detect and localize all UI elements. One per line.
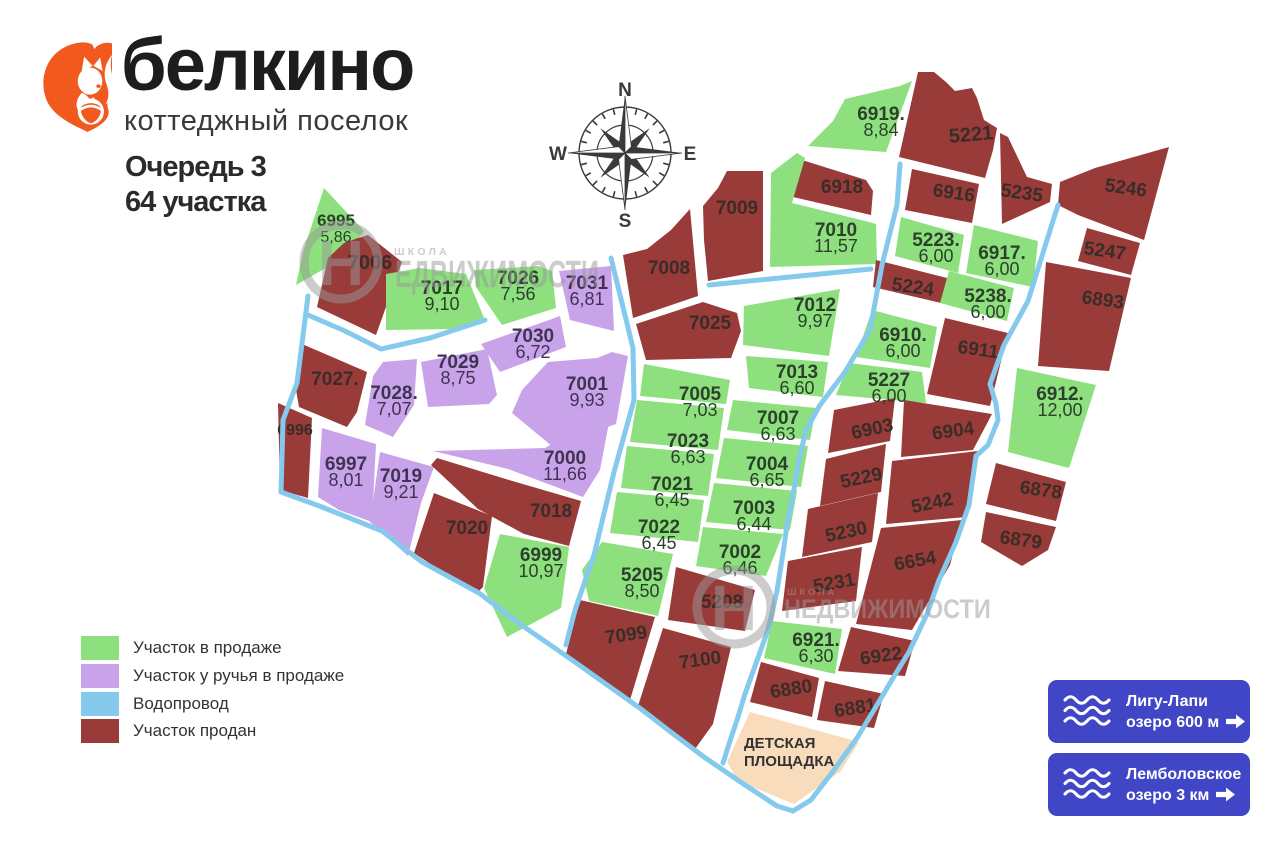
- svg-text:7018: 7018: [530, 501, 572, 522]
- svg-text:11,57: 11,57: [814, 236, 858, 256]
- svg-text:10,97: 10,97: [518, 561, 563, 581]
- svg-text:6,44: 6,44: [736, 514, 771, 534]
- svg-text:7009: 7009: [716, 198, 758, 219]
- svg-text:7,03: 7,03: [682, 400, 717, 420]
- svg-text:ЕДВИЖИМОСТИ: ЕДВИЖИМОСТИ: [395, 253, 599, 295]
- svg-text:6,65: 6,65: [749, 470, 784, 490]
- svg-text:9,97: 9,97: [797, 311, 832, 331]
- svg-text:S: S: [619, 211, 632, 232]
- svg-text:Н: Н: [318, 227, 364, 299]
- svg-text:7008: 7008: [648, 258, 690, 279]
- svg-text:6,45: 6,45: [641, 533, 676, 553]
- svg-text:6,45: 6,45: [654, 490, 689, 510]
- svg-text:8,01: 8,01: [328, 470, 363, 490]
- svg-text:6,63: 6,63: [760, 424, 795, 444]
- svg-text:11,66: 11,66: [543, 464, 587, 484]
- svg-text:5221: 5221: [948, 122, 994, 148]
- svg-text:6,00: 6,00: [918, 246, 953, 266]
- svg-text:9,21: 9,21: [383, 482, 418, 502]
- svg-text:ДЕТСКАЯ: ДЕТСКАЯ: [744, 735, 815, 752]
- svg-text:6918: 6918: [821, 177, 863, 198]
- svg-text:8,84: 8,84: [863, 120, 898, 140]
- svg-text:7025: 7025: [689, 313, 732, 334]
- svg-text:6,00: 6,00: [871, 386, 906, 406]
- svg-text:6,72: 6,72: [515, 342, 550, 362]
- svg-text:W: W: [549, 144, 567, 165]
- svg-text:7020: 7020: [446, 518, 488, 539]
- svg-text:9,10: 9,10: [424, 294, 459, 314]
- svg-text:N: N: [618, 80, 632, 101]
- svg-text:E: E: [684, 144, 697, 165]
- svg-text:НЕДВИЖИМОСТИ: НЕДВИЖИМОСТИ: [784, 595, 991, 625]
- svg-text:12,00: 12,00: [1037, 400, 1082, 420]
- svg-text:9,93: 9,93: [569, 390, 604, 410]
- svg-text:8,75: 8,75: [440, 368, 475, 388]
- svg-text:ПЛОЩАДКА: ПЛОЩАДКА: [744, 753, 834, 770]
- svg-text:6,60: 6,60: [779, 378, 814, 398]
- svg-text:5224: 5224: [890, 274, 935, 301]
- svg-text:6,00: 6,00: [885, 341, 920, 361]
- svg-text:7,07: 7,07: [376, 399, 411, 419]
- svg-text:6,63: 6,63: [670, 447, 705, 467]
- svg-text:8,50: 8,50: [624, 581, 659, 601]
- svg-text:6,00: 6,00: [984, 259, 1019, 279]
- svg-text:6,30: 6,30: [798, 646, 833, 666]
- svg-text:7027.: 7027.: [311, 369, 359, 390]
- svg-text:6,00: 6,00: [970, 302, 1005, 322]
- svg-text:Н: Н: [711, 572, 757, 644]
